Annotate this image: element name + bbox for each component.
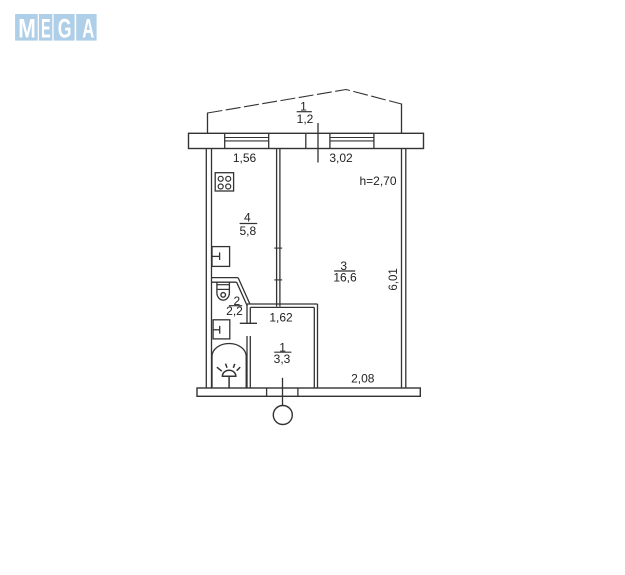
svg-text:1,56: 1,56 bbox=[233, 151, 257, 165]
svg-text:G: G bbox=[58, 13, 72, 43]
svg-text:E: E bbox=[41, 13, 51, 43]
svg-text:6,01: 6,01 bbox=[388, 268, 400, 290]
svg-text:3,3: 3,3 bbox=[274, 352, 291, 366]
svg-text:2,2: 2,2 bbox=[226, 304, 243, 318]
svg-text:4: 4 bbox=[244, 211, 251, 225]
svg-text:M: M bbox=[18, 13, 36, 43]
svg-text:2,08: 2,08 bbox=[351, 372, 375, 386]
svg-text:1,2: 1,2 bbox=[297, 112, 314, 126]
svg-text:5,8: 5,8 bbox=[239, 224, 256, 238]
svg-text:3,02: 3,02 bbox=[329, 151, 353, 165]
svg-text:A: A bbox=[82, 13, 94, 43]
svg-text:1,62: 1,62 bbox=[269, 310, 293, 324]
svg-text:h=2,70: h=2,70 bbox=[359, 174, 396, 188]
svg-text:16,6: 16,6 bbox=[333, 271, 357, 285]
